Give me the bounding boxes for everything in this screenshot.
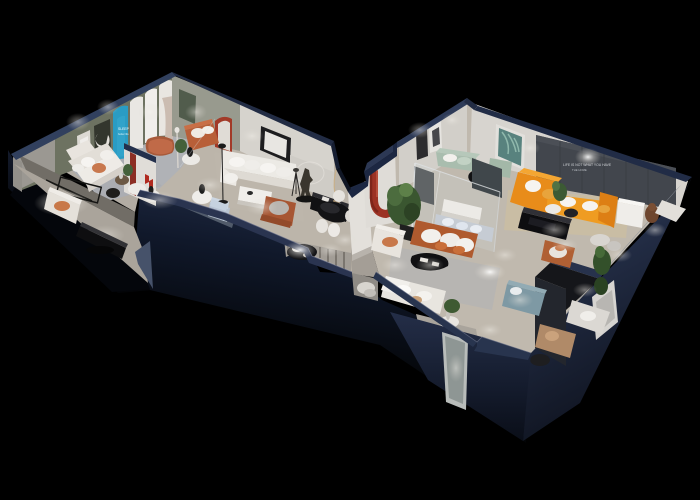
svg-text:SLEEP: SLEEP xyxy=(118,127,130,131)
svg-text:THE HOME: THE HOME xyxy=(572,168,587,172)
svg-text:better life: better life xyxy=(118,132,129,136)
